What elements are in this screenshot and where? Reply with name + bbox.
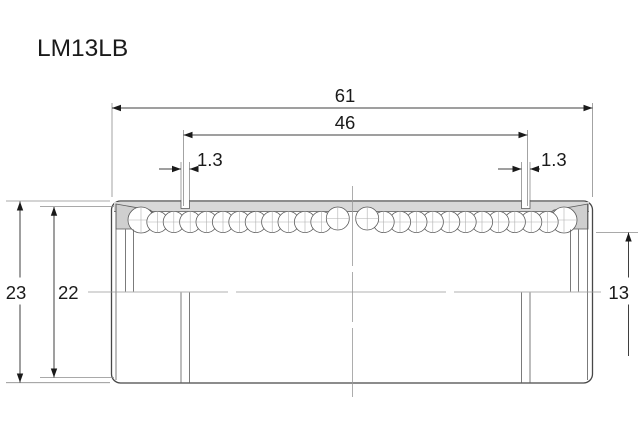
arrowhead-down (51, 369, 57, 378)
arrowhead-up (51, 207, 57, 216)
arrowhead-right (584, 105, 593, 111)
technical-drawing-page: LM13LB (0, 0, 640, 440)
dim-groove-width-left-label: 1.3 (197, 149, 223, 170)
dim-overall-length-label: 61 (335, 85, 356, 106)
dim-seal-diameter-label: 22 (58, 282, 79, 303)
dim-groove-width-right: 1.3 (498, 149, 567, 200)
right-groove-slot (522, 200, 531, 208)
arrowhead-left (184, 132, 193, 138)
arrowhead-right-pointing (513, 166, 522, 172)
dim-bore-diameter-label: 13 (608, 282, 629, 303)
dim-groove-width-left: 1.3 (159, 149, 223, 200)
dim-bore-diameter: 13 (596, 233, 638, 357)
part-number-title: LM13LB (37, 35, 128, 62)
bearing-section-drawing: LM13LB (0, 0, 640, 440)
dim-outer-diameter-label: 23 (6, 282, 27, 303)
arrowhead-left (112, 105, 121, 111)
dim-groove-width-right-label: 1.3 (541, 149, 567, 170)
dim-groove-span-label: 46 (335, 112, 356, 133)
arrowhead-right (519, 132, 528, 138)
arrowhead-down (17, 374, 23, 383)
arrowhead-right-pointing (172, 166, 181, 172)
arrowhead-up (17, 202, 23, 211)
dim-groove-span: 46 (184, 112, 528, 206)
arrowhead-up (625, 233, 631, 242)
dim-overall-length: 61 (112, 85, 593, 197)
arrowhead-left-pointing (530, 166, 539, 172)
bearing-body (112, 200, 593, 383)
left-groove-slot (181, 200, 190, 208)
